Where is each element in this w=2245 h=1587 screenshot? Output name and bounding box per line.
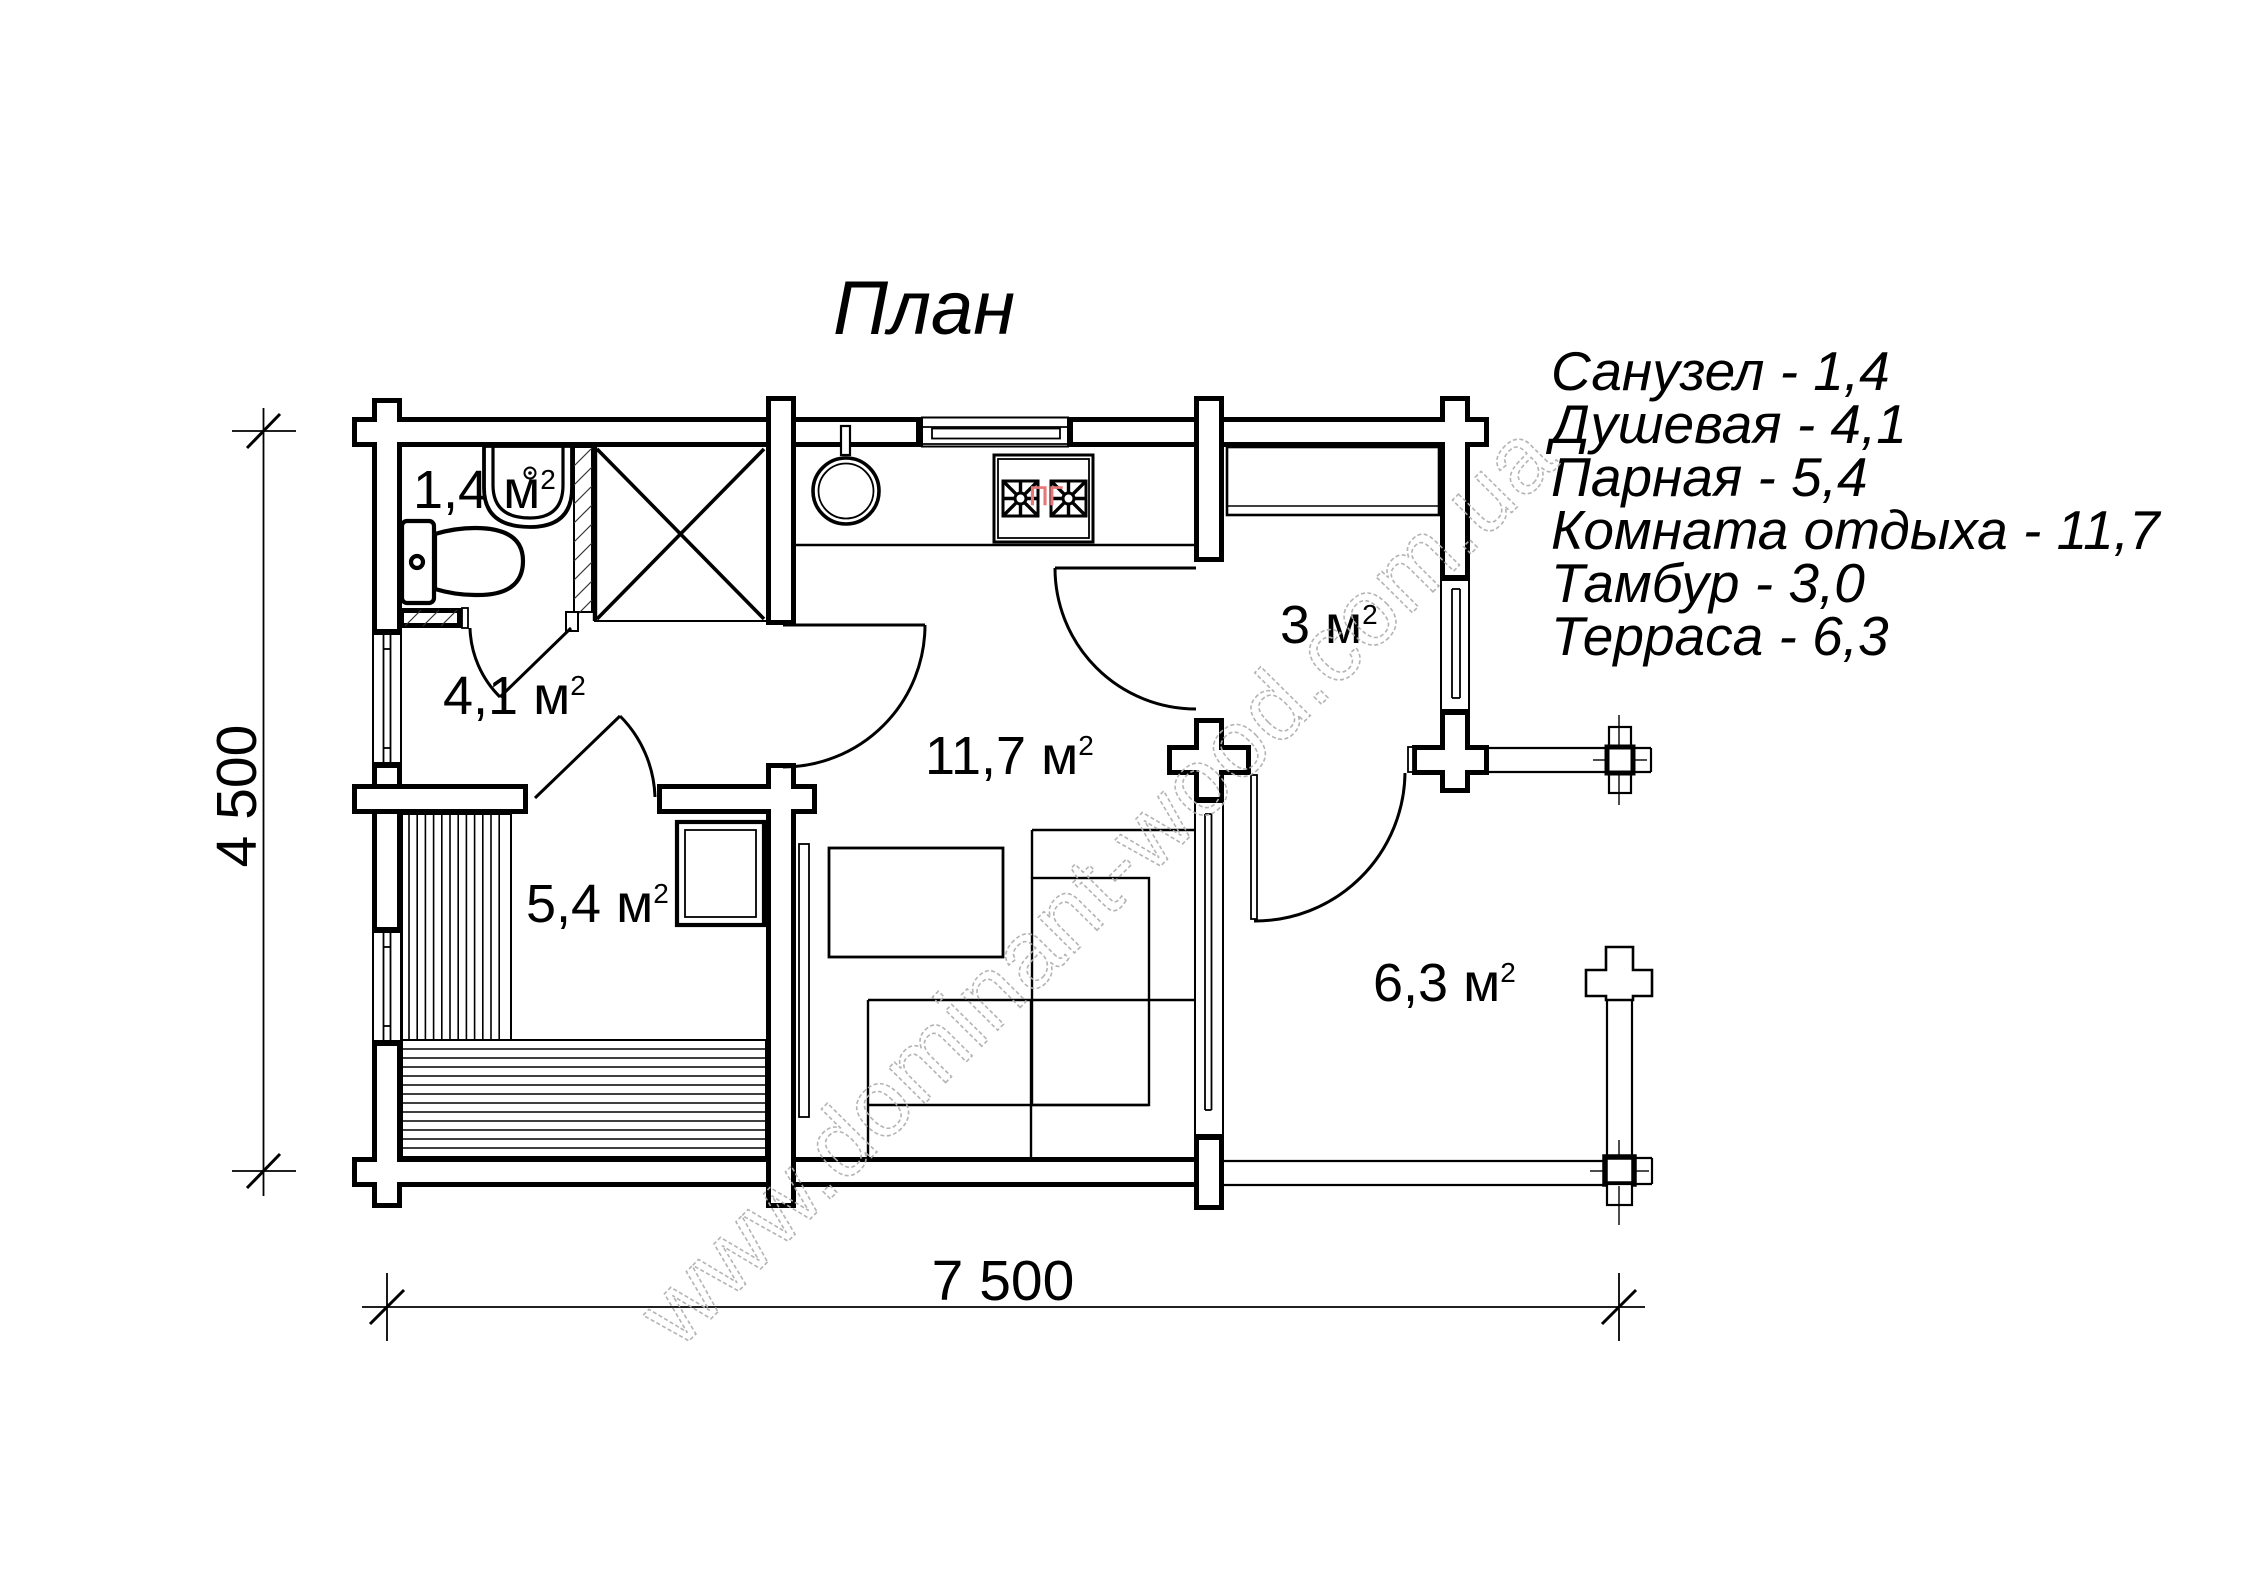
svg-text:ПГ: ПГ (1029, 481, 1063, 511)
svg-text:Терраса - 6,3: Терраса - 6,3 (1551, 605, 1889, 667)
svg-text:6,3 м2: 6,3 м2 (1373, 953, 1516, 1013)
svg-text:5,4 м2: 5,4 м2 (526, 874, 669, 934)
svg-text:4 500: 4 500 (205, 725, 269, 868)
svg-text:11,7 м2: 11,7 м2 (925, 726, 1094, 786)
svg-text:План: План (833, 266, 1015, 351)
svg-text:7 500: 7 500 (932, 1249, 1075, 1313)
svg-text:1,4 м2: 1,4 м2 (413, 460, 556, 520)
svg-text:4,1 м2: 4,1 м2 (443, 666, 586, 726)
